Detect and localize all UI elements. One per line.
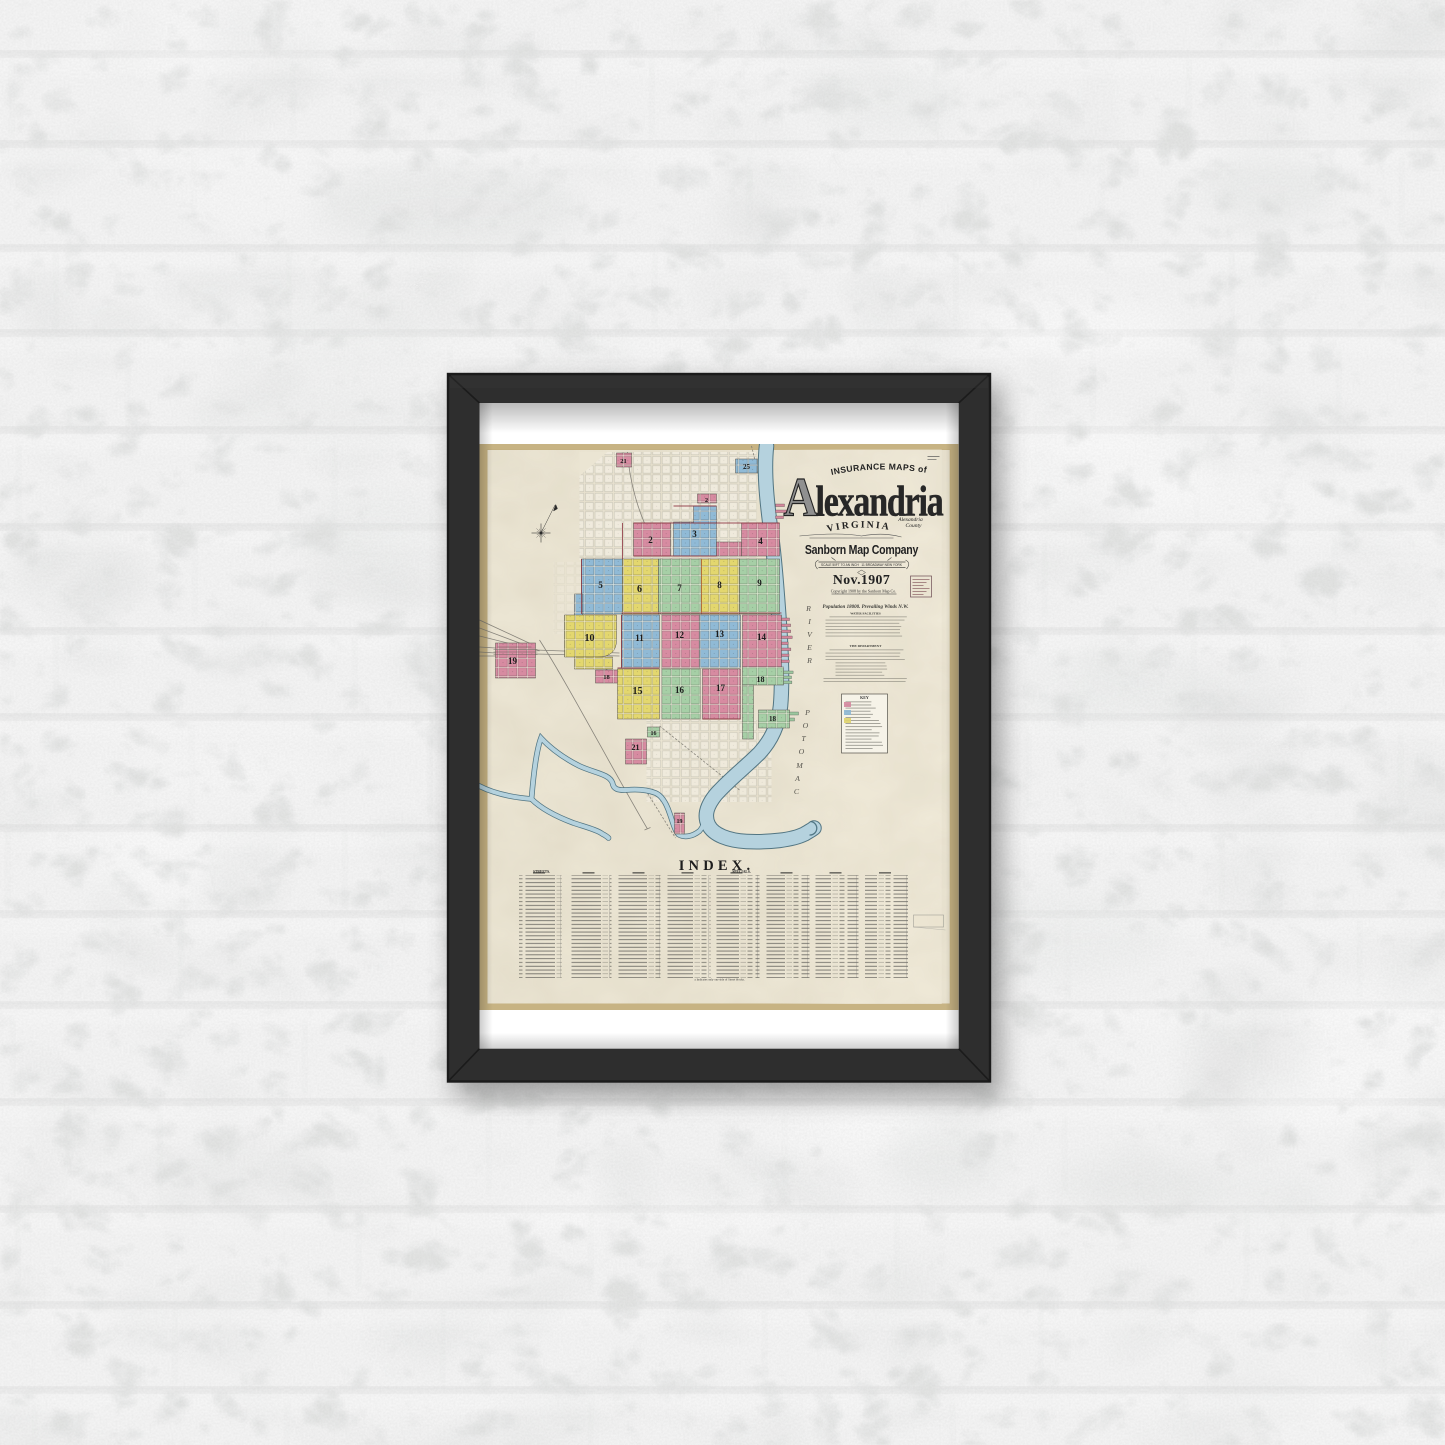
- svg-text:O: O: [803, 721, 809, 730]
- svg-text:6: 6: [637, 584, 642, 595]
- svg-text:P: P: [804, 708, 810, 717]
- svg-text:Sanborn Map Company: Sanborn Map Company: [805, 542, 919, 557]
- svg-text:21: 21: [620, 458, 627, 465]
- svg-text:M: M: [795, 761, 803, 770]
- svg-text:2: 2: [705, 497, 708, 504]
- svg-text:a Indicates only one side of S: a Indicates only one side of Street bloc…: [695, 978, 745, 982]
- svg-text:10: 10: [585, 633, 595, 644]
- svg-text:2: 2: [648, 535, 653, 545]
- svg-text:A: A: [794, 774, 800, 783]
- svg-text:O: O: [799, 747, 805, 756]
- svg-text:R: R: [805, 604, 811, 613]
- svg-text:I: I: [807, 617, 811, 626]
- svg-text:16: 16: [675, 685, 685, 695]
- svg-text:E: E: [806, 643, 812, 652]
- svg-text:16: 16: [651, 731, 657, 737]
- svg-text:11: 11: [635, 633, 644, 643]
- svg-text:County: County: [906, 523, 922, 529]
- svg-text:SCALE 50FT TO AN INCH 11 BRO: SCALE 50FT TO AN INCH 11 BROADWAY NEW YO…: [821, 563, 903, 567]
- svg-text:17: 17: [716, 683, 726, 693]
- svg-text:THE DEPARTMENT: THE DEPARTMENT: [850, 644, 882, 648]
- svg-text:19: 19: [677, 819, 683, 825]
- svg-text:18: 18: [769, 715, 777, 723]
- svg-text:18: 18: [757, 675, 765, 684]
- svg-text:18: 18: [603, 674, 610, 681]
- svg-text:13: 13: [715, 629, 725, 639]
- svg-text:R: R: [806, 656, 812, 665]
- svg-text:19: 19: [508, 656, 518, 666]
- svg-text:KEY: KEY: [860, 695, 869, 700]
- svg-text:25: 25: [743, 463, 751, 471]
- svg-text:A: A: [784, 467, 818, 528]
- svg-text:Copyright 1908 by the Sanborn: Copyright 1908 by the Sanborn Map Co.: [831, 589, 896, 594]
- svg-text:Population 18000. Prevailing W: Population 18000. Prevailing Winds N.W.: [823, 605, 909, 610]
- svg-text:WATER FACILITIES: WATER FACILITIES: [850, 612, 881, 616]
- svg-text:T: T: [801, 734, 806, 743]
- svg-text:lexandria: lexandria: [816, 478, 944, 526]
- svg-text:9: 9: [757, 578, 762, 588]
- svg-text:14: 14: [757, 632, 767, 642]
- svg-text:5: 5: [598, 580, 603, 590]
- svg-text:7: 7: [677, 583, 682, 593]
- svg-text:15: 15: [633, 686, 643, 697]
- svg-text:8: 8: [717, 580, 722, 590]
- svg-text:4: 4: [758, 536, 763, 546]
- svg-text:21: 21: [632, 743, 640, 752]
- svg-text:C: C: [794, 787, 800, 796]
- svg-text:3: 3: [692, 529, 697, 539]
- svg-text:Nov.1907: Nov.1907: [833, 572, 890, 587]
- svg-text:12: 12: [675, 630, 685, 640]
